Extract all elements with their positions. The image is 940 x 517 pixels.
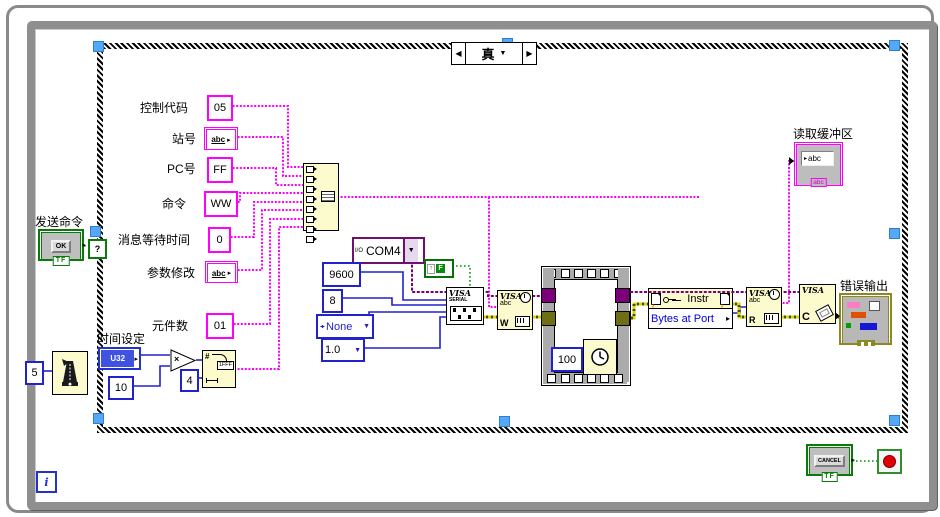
visa-write-node[interactable]: VISA abc W — [497, 290, 533, 330]
loop-condition-terminal[interactable] — [877, 449, 902, 474]
pc-no-constant[interactable]: FF — [207, 157, 233, 183]
clock-icon — [590, 347, 610, 367]
error-output-input-arrow — [835, 312, 840, 320]
read-buffer-indicator[interactable]: ▸abc abc — [794, 142, 843, 186]
ring-glyph: ◂▸ — [320, 323, 324, 330]
cancel-button[interactable]: CANCEL — [814, 455, 845, 467]
case-prev-button[interactable]: ◀ — [452, 43, 466, 64]
control-code-constant[interactable]: 05 — [207, 95, 233, 121]
error-output-label: 错误输出 — [840, 277, 888, 294]
hex-width-constant[interactable]: 4 — [180, 369, 199, 392]
visa-resource-constant[interactable]: I/O COM4 ▼ — [352, 237, 425, 264]
stop-bits-dropdown-icon[interactable]: ▼ — [354, 347, 361, 354]
property-node-bytes-at-port[interactable]: ?! Instr ?! Bytes at Port ▸ — [648, 288, 733, 329]
error-badge: ?! — [651, 304, 653, 310]
pc-no-label: PC号 — [167, 160, 196, 177]
error-badge: ?! — [720, 304, 722, 310]
time-setting-label: 时间设定 — [97, 330, 145, 347]
case-selector-tunnel[interactable]: ? — [88, 239, 107, 259]
visa-logo: VISA — [800, 285, 835, 294]
case-selector-label[interactable]: 真 ▼ — [466, 43, 522, 64]
command-label: 命令 — [162, 195, 186, 212]
metronome-icon — [58, 358, 82, 388]
false-value: F — [436, 264, 445, 273]
visa-tunnel-left[interactable] — [541, 288, 556, 303]
selection-handle-bottom-mid[interactable] — [499, 416, 510, 427]
question-glyph: ? — [95, 244, 101, 254]
close-letter: C — [802, 313, 810, 322]
multiply-glyph: × — [174, 354, 179, 364]
code-chip — [851, 312, 866, 318]
loop-iteration-terminal[interactable]: i — [36, 471, 57, 493]
multiplier-constant[interactable]: 10 — [108, 376, 134, 400]
key-icon — [663, 296, 676, 302]
read-buffer-input-arrow — [789, 157, 794, 165]
property-class-name: Instr — [678, 293, 718, 305]
parity-ring-constant[interactable]: ◂▸ None ▼ — [316, 314, 374, 339]
visa-close-node[interactable]: VISA C — [799, 284, 836, 324]
dip-switch-icon — [450, 306, 482, 321]
visa-configure-serial-node[interactable]: VISA SERIAL — [446, 287, 484, 325]
false-boolean-constant[interactable]: ? F — [424, 259, 454, 278]
send-command-tf-tag: TF — [53, 256, 70, 266]
send-command-out-arrow: ▸ — [82, 241, 86, 249]
write-letter: W — [500, 319, 509, 328]
parity-dropdown-icon[interactable]: ▼ — [363, 323, 370, 330]
station-out-arrow: ▸ — [227, 136, 231, 144]
wait-ms-constant[interactable]: 5 — [25, 361, 44, 385]
control-code-label: 控制代码 — [140, 99, 188, 116]
write-display-icon — [515, 316, 530, 327]
com-port-dropdown-icon[interactable]: ▼ — [403, 239, 418, 262]
message-wait-constant[interactable]: 0 — [208, 227, 231, 253]
property-out-arrow: ▸ — [726, 314, 730, 323]
read-display-icon — [764, 313, 779, 324]
param-modify-control[interactable]: abc▸ — [205, 261, 238, 283]
parity-value: None — [326, 321, 352, 333]
case-name: 真 — [482, 44, 495, 63]
stop-bits-value: 1.0 — [325, 344, 340, 356]
param-modify-label: 参数修改 — [147, 264, 195, 281]
station-no-label: 站号 — [172, 130, 196, 147]
command-constant[interactable]: WW — [204, 191, 238, 217]
stop-bits-ring-constant[interactable]: 1.0 ▼ — [321, 338, 365, 362]
number-to-hex-string-node[interactable]: # 1FFF — [202, 350, 236, 388]
stop-icon — [883, 455, 896, 468]
element-count-label: 元件数 — [152, 317, 188, 334]
baud-rate-constant[interactable]: 9600 — [322, 262, 361, 287]
selection-handle-mid-right[interactable] — [889, 228, 900, 239]
cancel-button-terminal[interactable]: CANCEL TF ▸ — [806, 444, 853, 482]
labview-block-diagram: ◀ 真 ▼ ▶ — [0, 0, 940, 517]
time-setting-u32-control[interactable]: U32 ▸ — [98, 347, 141, 370]
case-next-button[interactable]: ▶ — [522, 43, 536, 64]
concatenate-strings-node[interactable] — [303, 163, 339, 231]
error-tunnel-right[interactable] — [615, 311, 630, 326]
error-tunnel-left[interactable] — [541, 311, 556, 326]
case-selector[interactable]: ◀ 真 ▼ ▶ — [451, 42, 537, 65]
hash-glyph: # — [205, 352, 209, 361]
station-no-control[interactable]: abc▸ — [204, 127, 238, 150]
timeout-clock-icon — [769, 289, 780, 300]
property-name[interactable]: Bytes at Port — [651, 313, 726, 325]
com-port-value: COM4 — [364, 239, 403, 262]
data-bits-constant[interactable]: 8 — [322, 289, 343, 313]
message-wait-label: 消息等待时间 — [118, 231, 190, 248]
send-command-label: 发送命令 — [35, 213, 83, 230]
class-ref-icon-right: ?! — [720, 293, 730, 305]
param-out-arrow: ▸ — [228, 269, 232, 277]
serial-tag: SERIAL — [447, 297, 483, 303]
source-chip — [860, 323, 877, 330]
selection-handle-top-right[interactable] — [889, 40, 900, 51]
send-command-button-terminal[interactable]: OK TF ▸ — [38, 229, 84, 266]
visa-tunnel-right[interactable] — [615, 288, 630, 303]
delay-ms-constant[interactable]: 100 — [551, 347, 583, 372]
bool-chip — [846, 323, 851, 328]
wait-ms-node[interactable] — [583, 339, 617, 375]
close-card-icon — [815, 304, 834, 322]
string-type-tag: abc — [810, 178, 826, 187]
code-box-chip — [869, 301, 880, 311]
visa-logo: VISA — [447, 288, 483, 297]
selection-handle-mid-left[interactable] — [90, 226, 101, 237]
ok-button[interactable]: OK — [51, 240, 72, 253]
class-ref-icon-left: ?! — [651, 293, 661, 305]
visa-read-node[interactable]: VISA abc R — [746, 287, 782, 327]
cancel-tf-tag: TF — [821, 472, 838, 482]
field-arrow: ▸ — [804, 155, 807, 162]
case-dropdown-icon[interactable]: ▼ — [500, 50, 507, 57]
selection-handle-bottom-right[interactable] — [889, 415, 900, 426]
read-letter: R — [749, 316, 756, 325]
wait-until-next-ms-node[interactable] — [52, 351, 88, 395]
concat-input-terminals — [306, 166, 314, 243]
io-glyph: I/O — [354, 239, 364, 262]
timeout-clock-icon — [520, 292, 531, 303]
read-buffer-label: 读取缓冲区 — [793, 125, 853, 142]
element-count-constant[interactable]: 01 — [206, 313, 234, 339]
hex-width-icon — [206, 378, 218, 383]
cluster-type-tag — [857, 340, 875, 346]
error-output-indicator[interactable] — [839, 293, 892, 345]
status-chip — [847, 302, 860, 308]
concat-icon — [321, 191, 335, 202]
cancel-out-arrow: ▸ — [851, 456, 855, 464]
termchar-glyph: ? — [427, 264, 435, 274]
selection-handle-top-left[interactable] — [93, 41, 104, 52]
film-strip-top — [543, 268, 627, 279]
u32-out-arrow: ▸ — [134, 355, 138, 363]
selection-handle-bottom-left[interactable] — [93, 413, 104, 424]
hex-sample: 1FFF — [217, 361, 234, 370]
